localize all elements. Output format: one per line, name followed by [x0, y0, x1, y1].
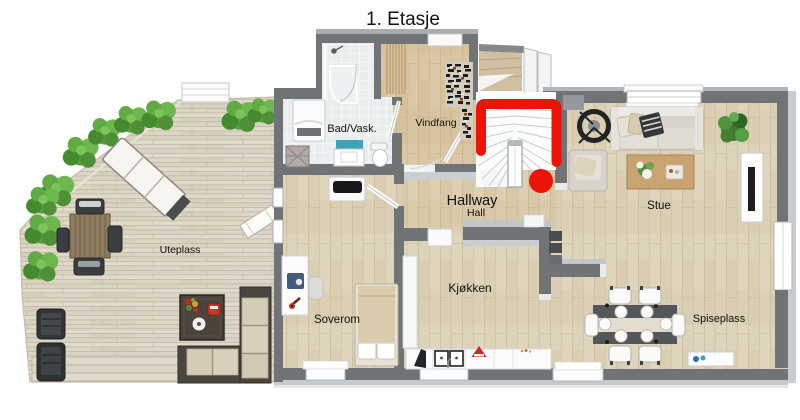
svg-text:Kjøkken: Kjøkken: [448, 281, 491, 295]
svg-text:Bad/Vask.: Bad/Vask.: [327, 123, 376, 135]
svg-text:1. Etasje: 1. Etasje: [366, 9, 440, 30]
svg-text:Vindfang: Vindfang: [415, 117, 456, 129]
svg-text:Uteplass: Uteplass: [160, 244, 201, 256]
svg-text:Spiseplass: Spiseplass: [693, 313, 746, 325]
svg-text:Soverom: Soverom: [314, 314, 360, 326]
svg-text:Hall: Hall: [467, 207, 485, 219]
svg-text:Stue: Stue: [647, 200, 671, 212]
